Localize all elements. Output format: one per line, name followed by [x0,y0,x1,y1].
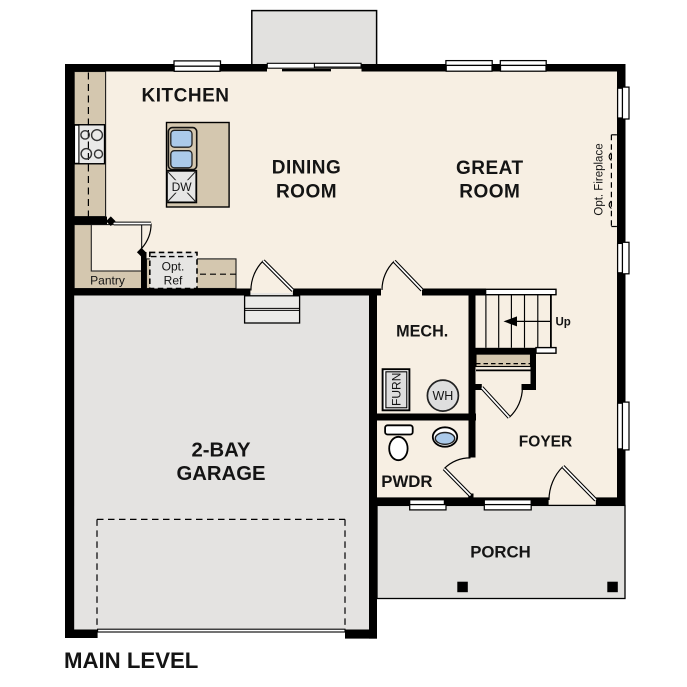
svg-text:DINING: DINING [272,158,342,179]
svg-text:Pantry: Pantry [90,274,125,288]
svg-text:Up: Up [556,317,571,329]
svg-text:GARAGE: GARAGE [176,463,265,485]
svg-text:Opt. Fireplace: Opt. Fireplace [594,143,606,215]
svg-text:2-BAY: 2-BAY [192,440,251,462]
svg-text:PORCH: PORCH [470,543,531,562]
svg-text:WH: WH [432,389,453,403]
svg-text:MAIN LEVEL: MAIN LEVEL [64,648,198,673]
svg-text:FOYER: FOYER [519,434,572,451]
svg-text:DW: DW [172,180,193,194]
svg-text:KITCHEN: KITCHEN [142,86,230,107]
svg-text:Opt.: Opt. [162,260,185,274]
svg-text:GREAT: GREAT [456,158,524,179]
svg-text:ROOM: ROOM [276,181,337,202]
svg-text:MECH.: MECH. [396,323,448,341]
svg-text:Ref: Ref [164,274,183,288]
svg-text:PWDR: PWDR [381,472,432,491]
svg-text:ROOM: ROOM [459,181,520,202]
svg-text:FURN: FURN [389,373,403,406]
